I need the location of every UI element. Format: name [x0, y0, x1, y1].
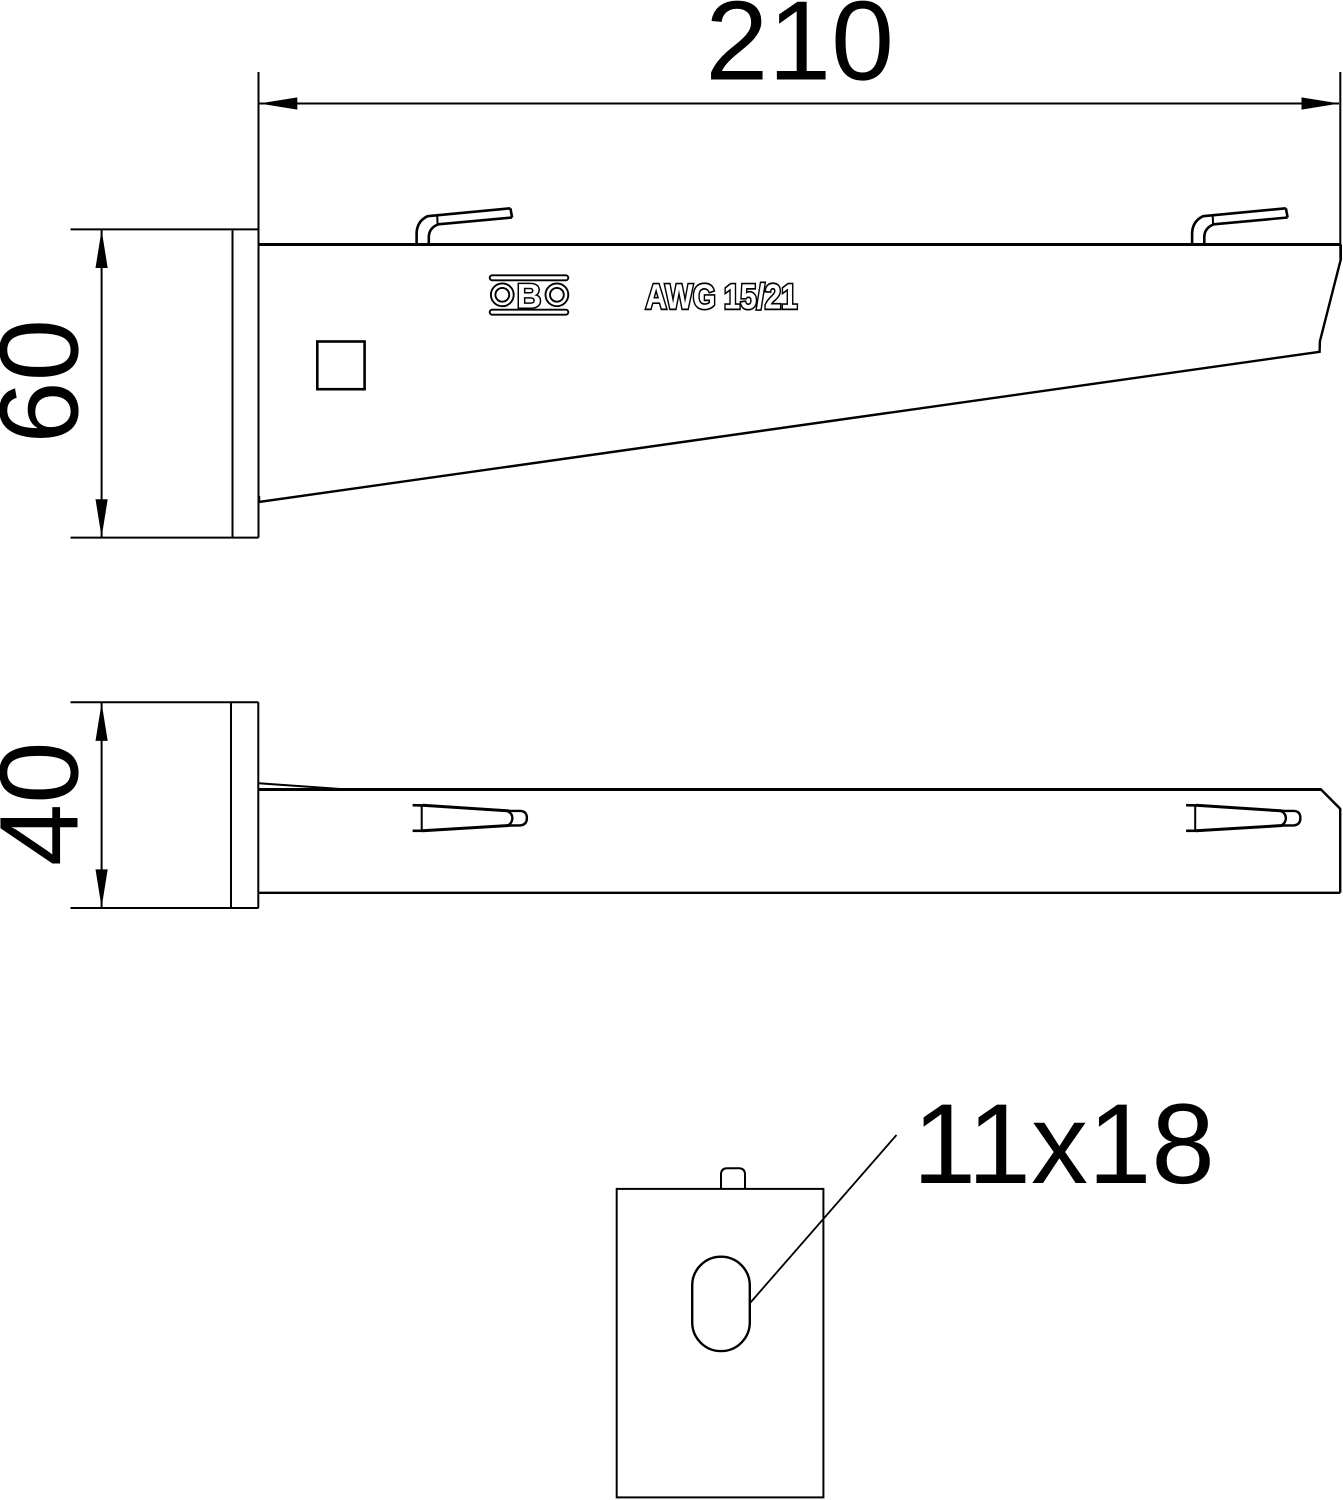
svg-text:11x18: 11x18 — [913, 1081, 1215, 1208]
svg-text:40: 40 — [0, 742, 102, 867]
svg-text:210: 210 — [705, 0, 894, 104]
svg-text:60: 60 — [0, 319, 102, 444]
svg-text:AWG 15/21: AWG 15/21 — [646, 278, 798, 317]
svg-text:B: B — [517, 277, 542, 315]
